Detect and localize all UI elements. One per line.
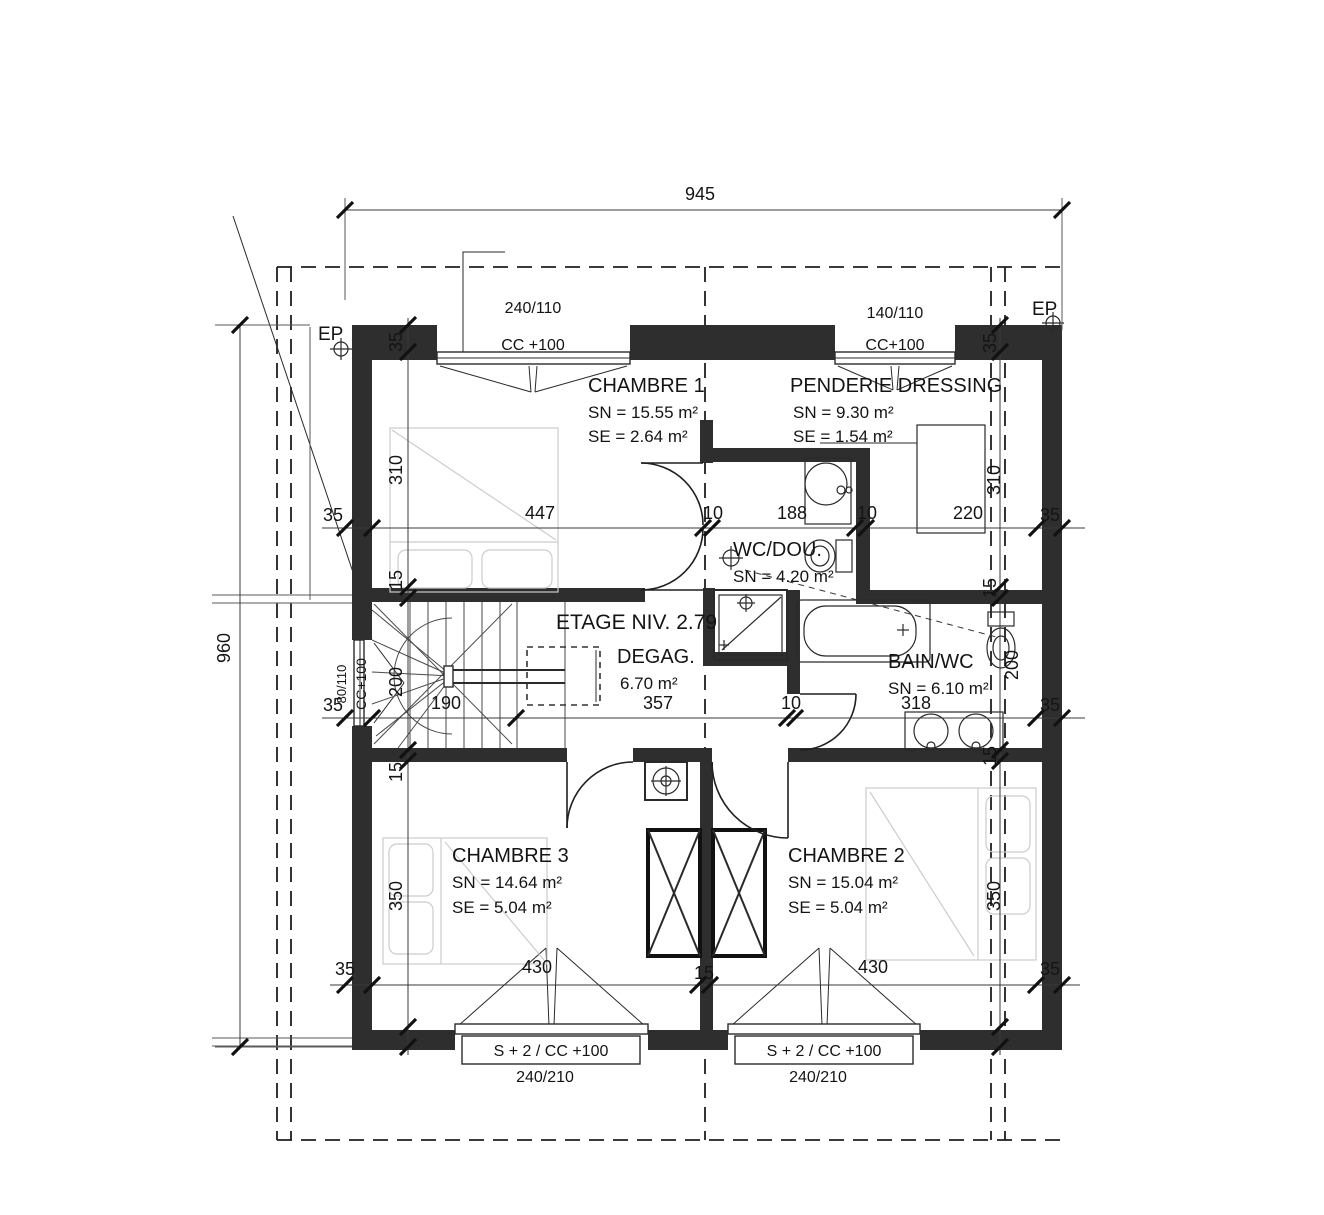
room-penderie-sn: SN = 9.30 m² <box>793 403 894 422</box>
floor-plan-drawing: 945 960 35 447 10 188 10 220 35 35 190 3… <box>0 0 1324 1215</box>
dim-overall-width: 945 <box>685 184 715 204</box>
dim-upper-0: 35 <box>323 505 343 525</box>
window-bottom-right-size: 240/210 <box>789 1069 847 1086</box>
ep-right-label: EP <box>1032 299 1057 320</box>
window-top-right-size: 140/110 <box>867 305 924 322</box>
duct-shaft-right <box>713 830 765 956</box>
dim-bottom-3: 430 <box>858 957 888 977</box>
dim-right-4: 15 <box>980 746 1000 766</box>
room-chambre2-name: CHAMBRE 2 <box>788 845 905 867</box>
window-top-left-size: 240/110 <box>505 300 562 317</box>
room-penderie-name: PENDERIE DRESSING <box>790 375 1002 397</box>
dim-bottom-2: 15 <box>694 963 714 983</box>
dim-middle-5: 35 <box>1040 695 1060 715</box>
room-chambre2-se: SE = 5.04 m² <box>788 898 888 917</box>
dim-overall-height: 960 <box>214 633 234 663</box>
dim-bottom-0: 35 <box>335 959 355 979</box>
dim-right-0: 35 <box>980 333 1000 353</box>
floor-plan-page: 945 960 35 447 10 188 10 220 35 35 190 3… <box>0 0 1324 1215</box>
dim-left-2: 15 <box>386 570 406 590</box>
dim-middle-3: 10 <box>781 693 801 713</box>
ep-left-label: EP <box>318 324 343 345</box>
dim-left-1: 310 <box>386 455 406 485</box>
window-left-sill: CC+100 <box>353 658 369 710</box>
dim-upper-5: 220 <box>953 503 983 523</box>
dim-left-0: 35 <box>386 332 406 352</box>
dim-upper-3: 188 <box>777 503 807 523</box>
window-bottom-right-sill: S + 2 / CC +100 <box>767 1043 882 1060</box>
room-chambre3-name: CHAMBRE 3 <box>452 845 569 867</box>
dim-bottom-1: 430 <box>522 957 552 977</box>
window-left-size: 80/110 <box>334 665 349 704</box>
dim-upper-6: 35 <box>1040 505 1060 525</box>
dim-left-3: 200 <box>386 667 406 697</box>
shower <box>714 590 787 660</box>
floor-opening-hatch <box>527 647 600 705</box>
dim-middle-2: 357 <box>643 693 673 713</box>
room-chambre1-name: CHAMBRE 1 <box>588 375 705 397</box>
room-chambre2-sn: SN = 15.04 m² <box>788 873 898 892</box>
room-degagement-name: DEGAG. <box>617 646 695 668</box>
room-wc-douche-name: WC/DOU. <box>733 539 822 561</box>
duct-shaft-left <box>648 830 700 956</box>
window-bottom-left-sill: S + 2 / CC +100 <box>494 1043 609 1060</box>
room-bain-wc-name: BAIN/WC <box>888 651 974 673</box>
dim-upper-4: 10 <box>857 503 877 523</box>
dim-left-4: 15 <box>386 762 406 782</box>
dim-right-2: 15 <box>980 578 1000 598</box>
room-bain-wc-sn: SN = 6.10 m² <box>888 679 989 698</box>
room-degagement-area: 6.70 m² <box>620 674 678 693</box>
window-bottom-left-size: 240/210 <box>516 1069 574 1086</box>
window-top-right-sill: CC+100 <box>865 337 924 354</box>
washbasin-dressing <box>805 458 852 524</box>
window-top-left-sill: CC +100 <box>501 337 565 354</box>
room-wc-douche-sn: SN = 4.20 m² <box>733 567 834 586</box>
level-label: ETAGE NIV. 2.79 <box>556 611 717 634</box>
ventilation-duct <box>645 762 687 800</box>
dim-middle-1: 190 <box>431 693 461 713</box>
room-chambre3-se: SE = 5.04 m² <box>452 898 552 917</box>
dimension-labels: 945 960 35 447 10 188 10 220 35 35 190 3… <box>214 184 1060 983</box>
dim-upper-2: 10 <box>703 503 723 523</box>
room-chambre1-sn: SN = 15.55 m² <box>588 403 698 422</box>
room-penderie-se: SE = 1.54 m² <box>793 427 893 446</box>
section-slope-line <box>233 216 363 602</box>
dim-left-5: 350 <box>386 881 406 911</box>
dim-right-5: 350 <box>984 881 1004 911</box>
dim-upper-1: 447 <box>525 503 555 523</box>
dim-right-3: 200 <box>1002 650 1022 680</box>
dim-right-1: 310 <box>984 465 1004 495</box>
room-chambre1-se: SE = 2.64 m² <box>588 427 688 446</box>
room-chambre3-sn: SN = 14.64 m² <box>452 873 562 892</box>
dim-bottom-4: 35 <box>1040 959 1060 979</box>
